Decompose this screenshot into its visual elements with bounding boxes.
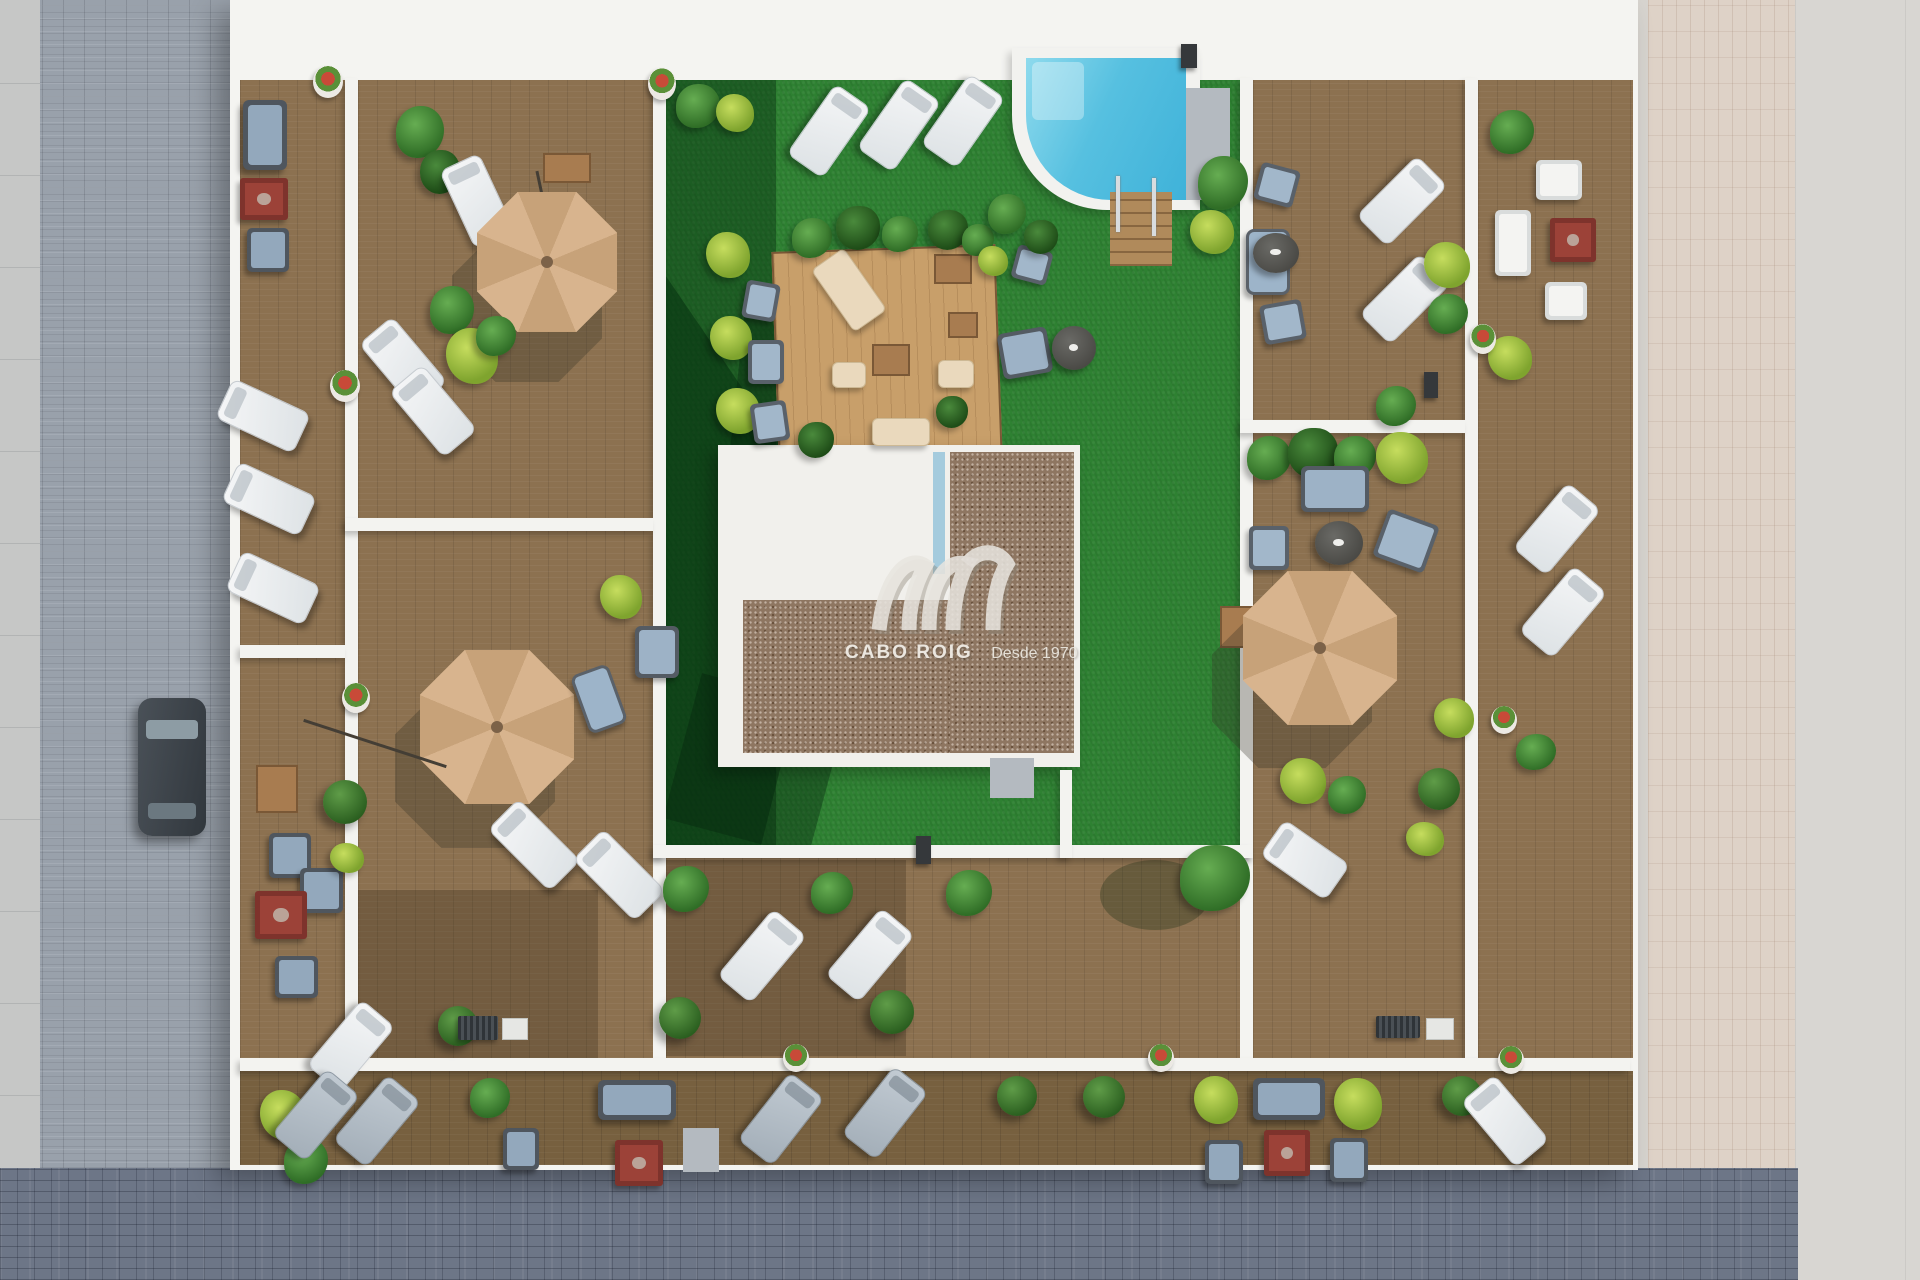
armchair (1205, 1140, 1243, 1184)
sidewalk-right (1795, 0, 1920, 1280)
palm-plant (978, 246, 1008, 276)
utility-pad (990, 758, 1034, 798)
sofa-blue (635, 626, 679, 678)
parasol-umbrella (477, 192, 617, 332)
sofa-blue (1253, 1078, 1325, 1120)
round-table (1315, 521, 1363, 565)
aerial-render-scene: CABO ROIG Desde 1970 (0, 0, 1920, 1280)
fire-table (615, 1140, 663, 1186)
divider-wall (653, 78, 666, 858)
flower-pot (330, 370, 360, 402)
armchair-blue (741, 279, 781, 322)
divider-wall (1465, 78, 1478, 1058)
flower-pot (342, 683, 370, 713)
armchair-blue (748, 340, 784, 384)
palm-plant (1194, 1076, 1238, 1124)
corner-sofa (243, 100, 287, 170)
divider-wall (1240, 420, 1465, 433)
car (138, 698, 206, 836)
fire-table (1550, 218, 1596, 262)
ac-unit-box (502, 1018, 528, 1040)
topiary-ball (1083, 1076, 1125, 1118)
parasol-umbrella (1243, 571, 1397, 725)
sofa-blue (996, 326, 1053, 380)
round-table (1052, 326, 1096, 370)
armchair-white (1536, 160, 1582, 200)
palm-plant (716, 94, 754, 132)
sofa-blue (1301, 466, 1369, 512)
armchair-white (1545, 282, 1587, 320)
armchair (503, 1128, 539, 1170)
armchair-blue (1259, 299, 1307, 346)
flower-pot (1498, 1046, 1524, 1074)
deck-planter (934, 254, 972, 284)
flower-pot (1470, 324, 1496, 354)
flower-pot (1491, 706, 1517, 734)
core-roof-gravel (743, 600, 950, 753)
pool-shallow-shelf (1032, 62, 1084, 120)
palm-plant (1424, 242, 1470, 288)
umbrella-base-table (543, 153, 591, 183)
ac-unit (1376, 1016, 1420, 1038)
flower-pot (1148, 1044, 1174, 1072)
palm-plant (1334, 1078, 1382, 1130)
parasol-umbrella (420, 650, 574, 804)
agave-plant (330, 843, 364, 873)
topiary-ball (659, 997, 701, 1039)
armchair (275, 956, 318, 998)
sofa-blue (598, 1080, 676, 1120)
flower-pot (783, 1044, 809, 1072)
divider-wall (345, 518, 653, 531)
palm-plant (600, 575, 642, 619)
deck-table (872, 344, 910, 376)
palm-plant (1434, 698, 1474, 738)
divider-wall (1060, 770, 1072, 858)
pool-handrail (1116, 176, 1120, 232)
deck-ottoman (832, 362, 866, 388)
armchair (247, 228, 289, 272)
flower-pot (313, 66, 343, 98)
armchair-white (1495, 210, 1531, 276)
roof-post (1424, 372, 1438, 398)
armchair (1330, 1138, 1368, 1182)
core-skylight (933, 452, 945, 574)
palm-plant (1190, 210, 1234, 254)
street-bottom-cobblestone (0, 1168, 1798, 1280)
core-roof-gravel (950, 452, 1074, 753)
palm-plant (1280, 758, 1326, 804)
topiary-ball (1418, 768, 1460, 810)
divider-wall (240, 1058, 1630, 1071)
palm-plant (706, 232, 750, 278)
fire-table (255, 891, 307, 939)
palm-plant (710, 316, 752, 360)
ac-unit (458, 1016, 498, 1040)
topiary-ball (997, 1076, 1037, 1116)
umbrella-base-table (256, 765, 298, 813)
sidewalk-left (0, 0, 40, 1280)
side-table (683, 1128, 719, 1172)
topiary-ball (323, 780, 367, 824)
deck-bench (872, 418, 930, 446)
fire-table (240, 178, 288, 220)
armchair-blue (1249, 526, 1289, 570)
topiary-ball (870, 990, 914, 1034)
pavement-right-cobble (1648, 0, 1798, 1280)
flower-pot (648, 68, 676, 100)
deck-ottoman (938, 360, 974, 388)
divider-wall (653, 845, 1253, 858)
roof-post (1181, 44, 1197, 68)
round-table (1253, 233, 1299, 273)
divider-wall (345, 78, 358, 1058)
pool-handrail (1152, 178, 1156, 236)
palm-plant (1376, 432, 1428, 484)
armchair-blue (749, 400, 790, 445)
palm-plant (1406, 822, 1444, 856)
ac-unit-box (1426, 1018, 1454, 1040)
divider-wall (240, 645, 345, 658)
deck-planter (948, 312, 978, 338)
roof-post (916, 836, 931, 864)
fire-table (1264, 1130, 1310, 1176)
terrace-bottom-private (240, 1071, 1633, 1165)
